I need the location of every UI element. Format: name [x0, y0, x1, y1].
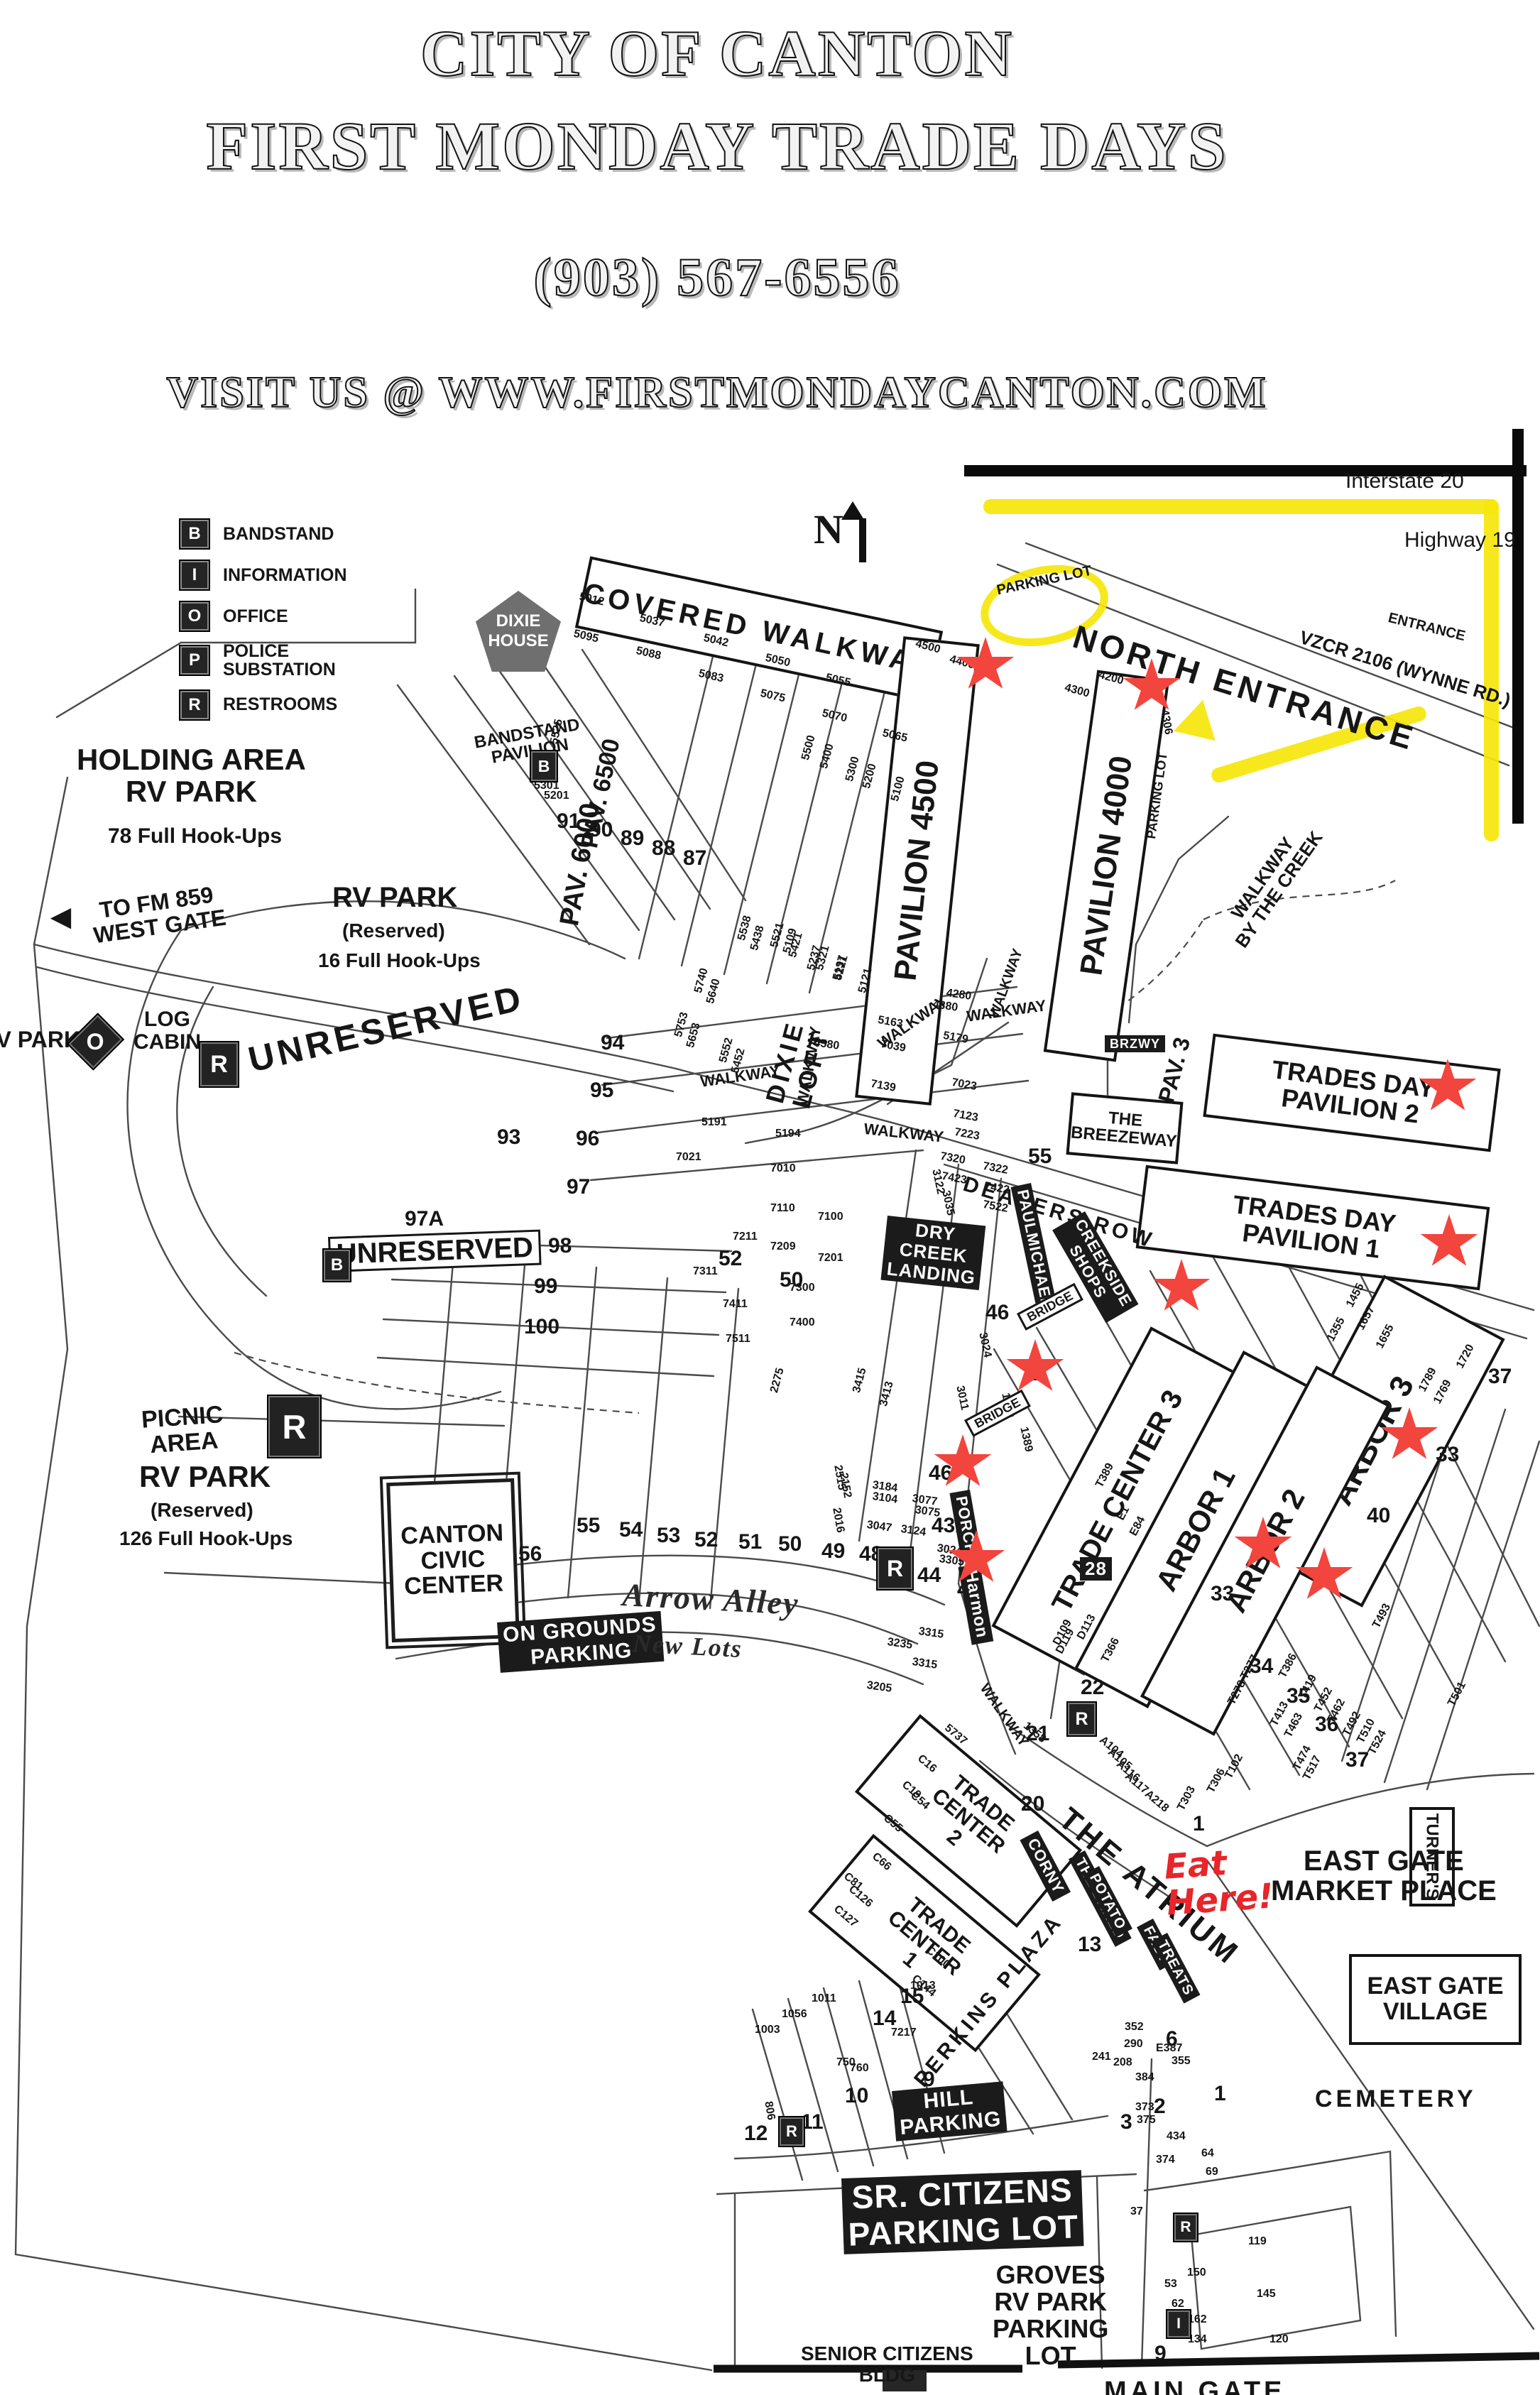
- lot-number: 7311: [693, 1265, 718, 1278]
- lot-number: 150: [1187, 2266, 1206, 2279]
- row-number: 3: [1120, 2110, 1132, 2134]
- cemetery-label: CEMETERY: [1315, 2086, 1477, 2112]
- interstate-20-label: Interstate 20: [1345, 470, 1464, 493]
- row-number: 87: [683, 846, 706, 871]
- row-number: 9: [1154, 2342, 1167, 2366]
- restrooms-icon: R: [1173, 2213, 1198, 2242]
- rv-park-left-label: RV PARK: [0, 1028, 80, 1052]
- row-number: 46: [985, 1301, 1009, 1325]
- row-number: 21: [1026, 1722, 1049, 1746]
- restrooms-icon: R: [199, 1041, 239, 1088]
- lot-number: 1056: [782, 2008, 807, 2021]
- lot-number: 119: [1248, 2235, 1267, 2248]
- canton-trade-days-map-page: CITY OF CANTON FIRST MONDAY TRADE DAYS (…: [0, 0, 1540, 2395]
- row-number: 100: [524, 1315, 559, 1339]
- map-label: New Lots: [632, 1630, 743, 1662]
- row-number: 12: [744, 2122, 768, 2146]
- lot-number: 37: [1130, 2205, 1143, 2218]
- sr-citizens-parking-label: SR. CITIZENS PARKING LOT: [841, 2170, 1084, 2254]
- row-number: 95: [590, 1079, 613, 1103]
- legend-item-label: INFORMATION: [223, 566, 347, 584]
- row-number: 97A: [405, 1207, 444, 1231]
- lot-number: 352: [1125, 2021, 1144, 2034]
- lot-number: 355: [1172, 2055, 1191, 2068]
- lot-number: 1011: [812, 1992, 836, 2005]
- row-number: 89: [621, 826, 644, 851]
- rv-park-reserved-126-label: RV PARK: [139, 1461, 271, 1493]
- highway-19-label: Highway 19: [1404, 529, 1516, 552]
- map-label: 126 Full Hook-Ups: [119, 1528, 293, 1549]
- trades-day-pavilion-2-label: TRADES DAY PAVILION 2: [1267, 1056, 1436, 1129]
- information-icon: I: [179, 560, 210, 591]
- lot-number: 5201: [544, 790, 569, 802]
- holding-area-rv-park-label: HOLDING AREA RV PARK: [77, 744, 306, 807]
- row-number: 56: [518, 1542, 542, 1566]
- row-number: 44: [917, 1564, 941, 1588]
- lot-number: 145: [1257, 2288, 1276, 2301]
- lot-number: 120: [1269, 2333, 1289, 2346]
- pavilion-4000-label: PAVILION 4000: [1075, 754, 1138, 978]
- row-number: 52: [719, 1247, 742, 1271]
- row-number: 40: [1367, 1504, 1390, 1528]
- north-arrow: N: [814, 506, 889, 562]
- restrooms-icon: R: [778, 2116, 805, 2147]
- groves-rv-park-label: GROVES RV PARK PARKING LOT: [993, 2262, 1108, 2370]
- map-label: (Reserved): [342, 920, 445, 942]
- canton-civic-center-label: CANTON CIVIC CENTER: [400, 1520, 506, 1600]
- the-breezeway: THE BREEZEWAY: [1066, 1092, 1183, 1164]
- senior-citizens-bldg-label: SENIOR CITIZENS BLDG: [801, 2343, 973, 2385]
- lot-number: 64: [1201, 2147, 1214, 2160]
- lot-number: 69: [1206, 2166, 1218, 2178]
- lot-number: 7201: [818, 1252, 843, 1265]
- map-label: ◀: [51, 903, 71, 930]
- highlighted-route-horizontal: [983, 499, 1498, 514]
- restrooms-icon: R: [1066, 1701, 1097, 1737]
- row-number: 20: [1021, 1792, 1044, 1816]
- lot-number: 53: [1164, 2278, 1177, 2291]
- legend-item-label: POLICE SUBSTATION: [223, 642, 336, 680]
- hill-parking-label: HILL PARKING: [892, 2081, 1007, 2142]
- north-arrow-stem: [859, 518, 866, 562]
- row-number: 14: [873, 2007, 896, 2031]
- lot-number: 374: [1156, 2154, 1175, 2166]
- row-number: 50: [778, 1532, 802, 1556]
- icon-letter: R: [1180, 2219, 1191, 2236]
- icon-letter: R: [887, 1556, 903, 1582]
- lot-number: 7211: [733, 1231, 758, 1243]
- main-gate-label: MAIN GATE: [1104, 2377, 1285, 2395]
- lot-number: 7209: [770, 1240, 796, 1253]
- restrooms-icon: R: [179, 689, 210, 721]
- restrooms-icon: R: [267, 1395, 322, 1458]
- lot-number: 7021: [676, 1151, 701, 1164]
- icon-letter: B: [331, 1255, 343, 1275]
- row-number: 96: [576, 1127, 599, 1151]
- row-number: 33: [1436, 1443, 1459, 1467]
- map-label: (Reserved): [151, 1500, 253, 1521]
- row-number: 37: [1345, 1748, 1369, 1772]
- legend-item-label: BANDSTAND: [223, 525, 334, 543]
- lot-number: 1003: [755, 2024, 780, 2036]
- row-number: 52: [694, 1528, 718, 1552]
- north-label: N: [814, 506, 843, 553]
- row-number: 10: [845, 2084, 868, 2108]
- lot-number: 7100: [818, 1211, 843, 1223]
- dixie-house-label: DIXIE HOUSE: [488, 611, 548, 651]
- rv-park-reserved-16-label: RV PARK: [332, 883, 457, 912]
- row-number: 88: [652, 836, 675, 861]
- lot-number: 290: [1124, 2038, 1143, 2051]
- row-number: 50: [780, 1268, 803, 1292]
- lot-number: 5191: [701, 1116, 727, 1129]
- row-number: 94: [601, 1031, 624, 1055]
- legend-item-office: OOFFICE: [179, 601, 347, 632]
- lot-number: 375: [1137, 2114, 1156, 2127]
- row-number: 33: [1211, 1582, 1234, 1606]
- row-number: 34: [1250, 1654, 1273, 1679]
- lot-number: 760: [850, 2062, 869, 2075]
- lot-number: 7400: [790, 1316, 815, 1329]
- icon-letter: R: [210, 1051, 228, 1079]
- map-label: 78 Full Hook-Ups: [108, 825, 282, 848]
- map-label: 16 Full Hook-Ups: [318, 950, 481, 971]
- row-number: 97: [567, 1175, 590, 1199]
- map-label: 28: [1080, 1557, 1112, 1581]
- legend-item-bandstand: BBANDSTAND: [179, 518, 347, 550]
- east-gate-village: EAST GATE VILLAGE: [1349, 1954, 1522, 2045]
- row-number: 99: [534, 1275, 557, 1299]
- legend-item-police: PPOLICE SUBSTATION: [179, 642, 347, 680]
- legend-item-label: OFFICE: [223, 607, 288, 626]
- eat-here-annotation: Eat Here!: [1163, 1842, 1275, 1921]
- east-gate-market-place-label: EAST GATE MARKET PLACE: [1271, 1846, 1497, 1906]
- east-gate-village-label: EAST GATE VILLAGE: [1367, 1974, 1503, 2024]
- bandstand-icon: B: [322, 1248, 351, 1282]
- row-number: 54: [619, 1518, 643, 1542]
- legend-item-information: IINFORMATION: [179, 560, 347, 591]
- row-number: 55: [577, 1514, 600, 1538]
- icon-letter: R: [283, 1407, 307, 1446]
- legend-item-label: RESTROOMS: [223, 695, 337, 714]
- row-number: 13: [1078, 1933, 1101, 1957]
- highway-19-road: [1512, 429, 1524, 824]
- row-number: 1: [1193, 1812, 1205, 1836]
- lot-number: 241: [1092, 2051, 1111, 2063]
- map-label: LOG CABIN: [133, 1008, 201, 1054]
- row-number: 53: [657, 1524, 680, 1548]
- dry-creek-landing-label: DRY CREEK LANDING: [880, 1216, 985, 1290]
- police-icon: P: [179, 645, 210, 676]
- lot-number: 7010: [770, 1162, 796, 1175]
- icon-letter: B: [538, 757, 550, 776]
- bandstand-icon: B: [179, 518, 210, 550]
- lot-number: 384: [1135, 2071, 1154, 2084]
- map-legend: BBANDSTANDIINFORMATIONOOFFICEPPOLICE SUB…: [179, 518, 347, 731]
- map-label: BRZWY: [1105, 1035, 1165, 1052]
- lot-number: 7411: [723, 1298, 748, 1311]
- row-number: 98: [548, 1234, 572, 1258]
- row-number: 37: [1488, 1365, 1512, 1389]
- row-number: 49: [821, 1539, 845, 1564]
- restrooms-icon: R: [876, 1546, 914, 1591]
- information-icon: I: [1166, 2309, 1191, 2339]
- row-number: 22: [1081, 1676, 1104, 1700]
- icon-letter: O: [87, 1028, 104, 1054]
- lot-number: 373: [1135, 2101, 1154, 2114]
- row-number: 51: [738, 1530, 762, 1554]
- row-number: 2: [1154, 2095, 1166, 2119]
- icon-letter: R: [1075, 1709, 1088, 1730]
- north-arrow-head: [841, 501, 864, 520]
- unreserved-boxed-label: UNRESERVED: [328, 1230, 542, 1273]
- row-number: 93: [497, 1125, 520, 1150]
- legend-item-restrooms: RRESTROOMS: [179, 689, 347, 721]
- lot-number: 7511: [726, 1333, 750, 1346]
- lot-number: 7110: [770, 1202, 795, 1215]
- row-number: 15: [900, 1985, 924, 2009]
- office-icon: O: [179, 601, 210, 632]
- icon-letter: R: [786, 2122, 797, 2141]
- row-number: 35: [1287, 1684, 1310, 1708]
- icon-letter: I: [1176, 2315, 1181, 2333]
- lot-number: 434: [1167, 2130, 1186, 2143]
- lot-number: 5194: [775, 1128, 801, 1140]
- map-label: PICNIC AREA: [141, 1402, 226, 1458]
- lot-number: 208: [1113, 2056, 1132, 2069]
- canton-civic-center: CANTON CIVIC CENTER: [386, 1478, 520, 1642]
- row-number: 36: [1315, 1713, 1338, 1737]
- row-number: 1: [1214, 2082, 1226, 2106]
- the-breezeway-label: THE BREEZEWAY: [1070, 1106, 1179, 1150]
- row-number: 55: [1028, 1145, 1052, 1169]
- bandstand-icon: B: [530, 750, 558, 782]
- row-number: 6: [1166, 2027, 1178, 2051]
- trades-day-pavilion-1-label: TRADES DAY PAVILION 1: [1228, 1191, 1397, 1264]
